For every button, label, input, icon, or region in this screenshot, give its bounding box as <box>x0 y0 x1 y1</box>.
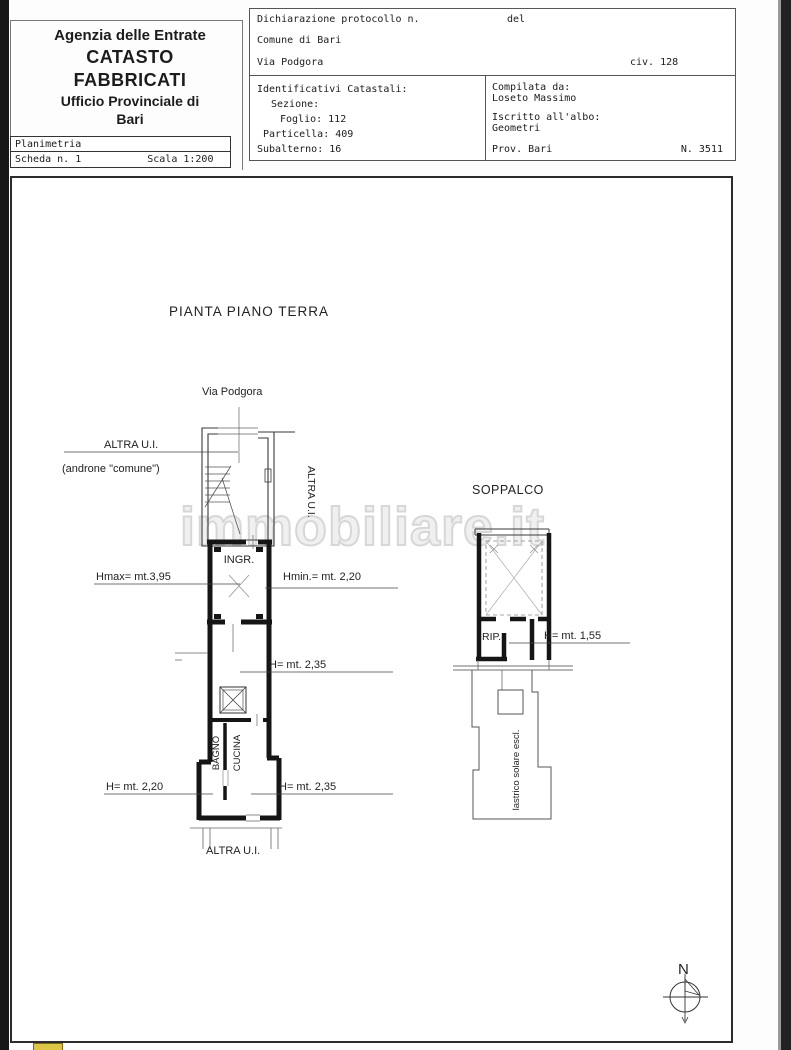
declaration-top-cell: Dichiarazione protocollo n. del Comune d… <box>250 9 735 76</box>
scale-value: Scala 1:200 <box>147 154 213 165</box>
civ-number: civ. 128 <box>630 57 678 68</box>
north-letter: N <box>678 961 689 978</box>
right-dark-strip <box>781 0 791 1050</box>
left-dark-strip <box>0 0 9 1050</box>
altra-ui-right-label: ALTRA U.I. <box>305 466 317 518</box>
subalterno-value: Subalterno: 16 <box>250 142 485 157</box>
ingresso-room-label: INGR. <box>224 554 255 566</box>
lastrico-solare-label: lastrico solare escl. <box>511 730 522 811</box>
cadastral-plan-page: Agenzia delle Entrate CATASTO FABBRICATI… <box>0 0 791 1050</box>
hmin-dimension: Hmin.= mt. 2,20 <box>283 571 361 583</box>
androne-label: (androne "comune") <box>62 463 160 475</box>
androne-entrance-threshold <box>218 407 258 463</box>
header-divider-rule <box>242 20 243 170</box>
header-top-rule <box>10 20 243 21</box>
height-220-dimension: H= mt. 2,20 <box>106 781 163 793</box>
agency-line2: CATASTO FABBRICATI <box>28 46 232 93</box>
soppalco-title: SOPPALCO <box>472 483 544 497</box>
soppalco-dashed-room <box>486 541 542 615</box>
compiled-by-label: Compilata da: <box>486 76 735 93</box>
cucina-room-label: CUCINA <box>232 734 243 771</box>
street-name-label: Via Podgora <box>202 386 263 398</box>
scheda-number: Scheda n. 1 <box>15 154 81 165</box>
identifiers-title: Identificativi Catastali: <box>250 76 485 97</box>
comune-label: Comune di Bari <box>257 35 341 46</box>
drawing-frame: immobiliare.it <box>10 176 733 1043</box>
protocol-label: Dichiarazione protocollo n. <box>257 14 420 25</box>
agency-line3: Ufficio Provinciale di <box>28 92 232 110</box>
androne-walls <box>202 428 295 546</box>
unit-thick-walls <box>199 540 280 820</box>
register-number: N. 3511 <box>681 144 723 155</box>
planimetria-title: Planimetria <box>11 137 230 152</box>
albo-value: Geometri <box>486 123 735 134</box>
staircase <box>205 466 240 534</box>
dimension-leaders <box>64 452 630 794</box>
identifiers-cell: Identificativi Catastali: Sezione: Fogli… <box>250 76 486 160</box>
street-label: Via Podgora <box>257 57 323 68</box>
albo-label: Iscritto all'albo: <box>486 104 735 123</box>
bagno-room-label: BAGNO <box>211 736 222 770</box>
height-235-upper-dimension: H= mt. 2,35 <box>269 659 326 671</box>
header-left-rule <box>10 20 11 136</box>
compiler-cell: Compilata da: Loseto Massimo Iscritto al… <box>486 76 735 160</box>
agency-line1: Agenzia delle Entrate <box>28 26 232 46</box>
section-lines <box>453 666 573 670</box>
yellow-highlight-chip <box>33 1043 63 1050</box>
hmax-dimension: Hmax= mt.3,95 <box>96 571 171 583</box>
sezione-value: Sezione: <box>250 97 485 112</box>
ingr-cross-mark <box>229 575 249 597</box>
agency-line4: Bari <box>28 110 232 128</box>
height-235-lower-dimension: H= mt. 2,35 <box>279 781 336 793</box>
ripostiglio-room-label: RIP. <box>482 631 501 643</box>
soppalco-parapet <box>475 529 549 535</box>
protocol-del-label: del <box>507 14 525 25</box>
declaration-box: Dichiarazione protocollo n. del Comune d… <box>249 8 736 161</box>
particella-value: Particella: 409 <box>250 127 485 142</box>
altra-ui-top-label: ALTRA U.I. <box>104 439 158 451</box>
plan-title: PIANTA PIANO TERRA <box>169 304 329 319</box>
height-155-dimension: H= mt. 1,55 <box>544 630 601 642</box>
planimetria-table: Planimetria Scheda n. 1 Scala 1:200 <box>10 136 231 168</box>
north-compass <box>663 974 708 1023</box>
altra-ui-bottom-label: ALTRA U.I. <box>206 845 260 857</box>
prov-value: Prov. Bari <box>492 144 552 155</box>
foglio-value: Foglio: 112 <box>250 112 485 127</box>
compiler-name: Loseto Massimo <box>486 93 735 104</box>
shaft-box <box>220 687 246 713</box>
floor-plan-drawing: PIANTA PIANO TERRA Via Podgora ALTRA U.I… <box>12 178 731 1041</box>
agency-block: Agenzia delle Entrate CATASTO FABBRICATI… <box>28 26 232 129</box>
